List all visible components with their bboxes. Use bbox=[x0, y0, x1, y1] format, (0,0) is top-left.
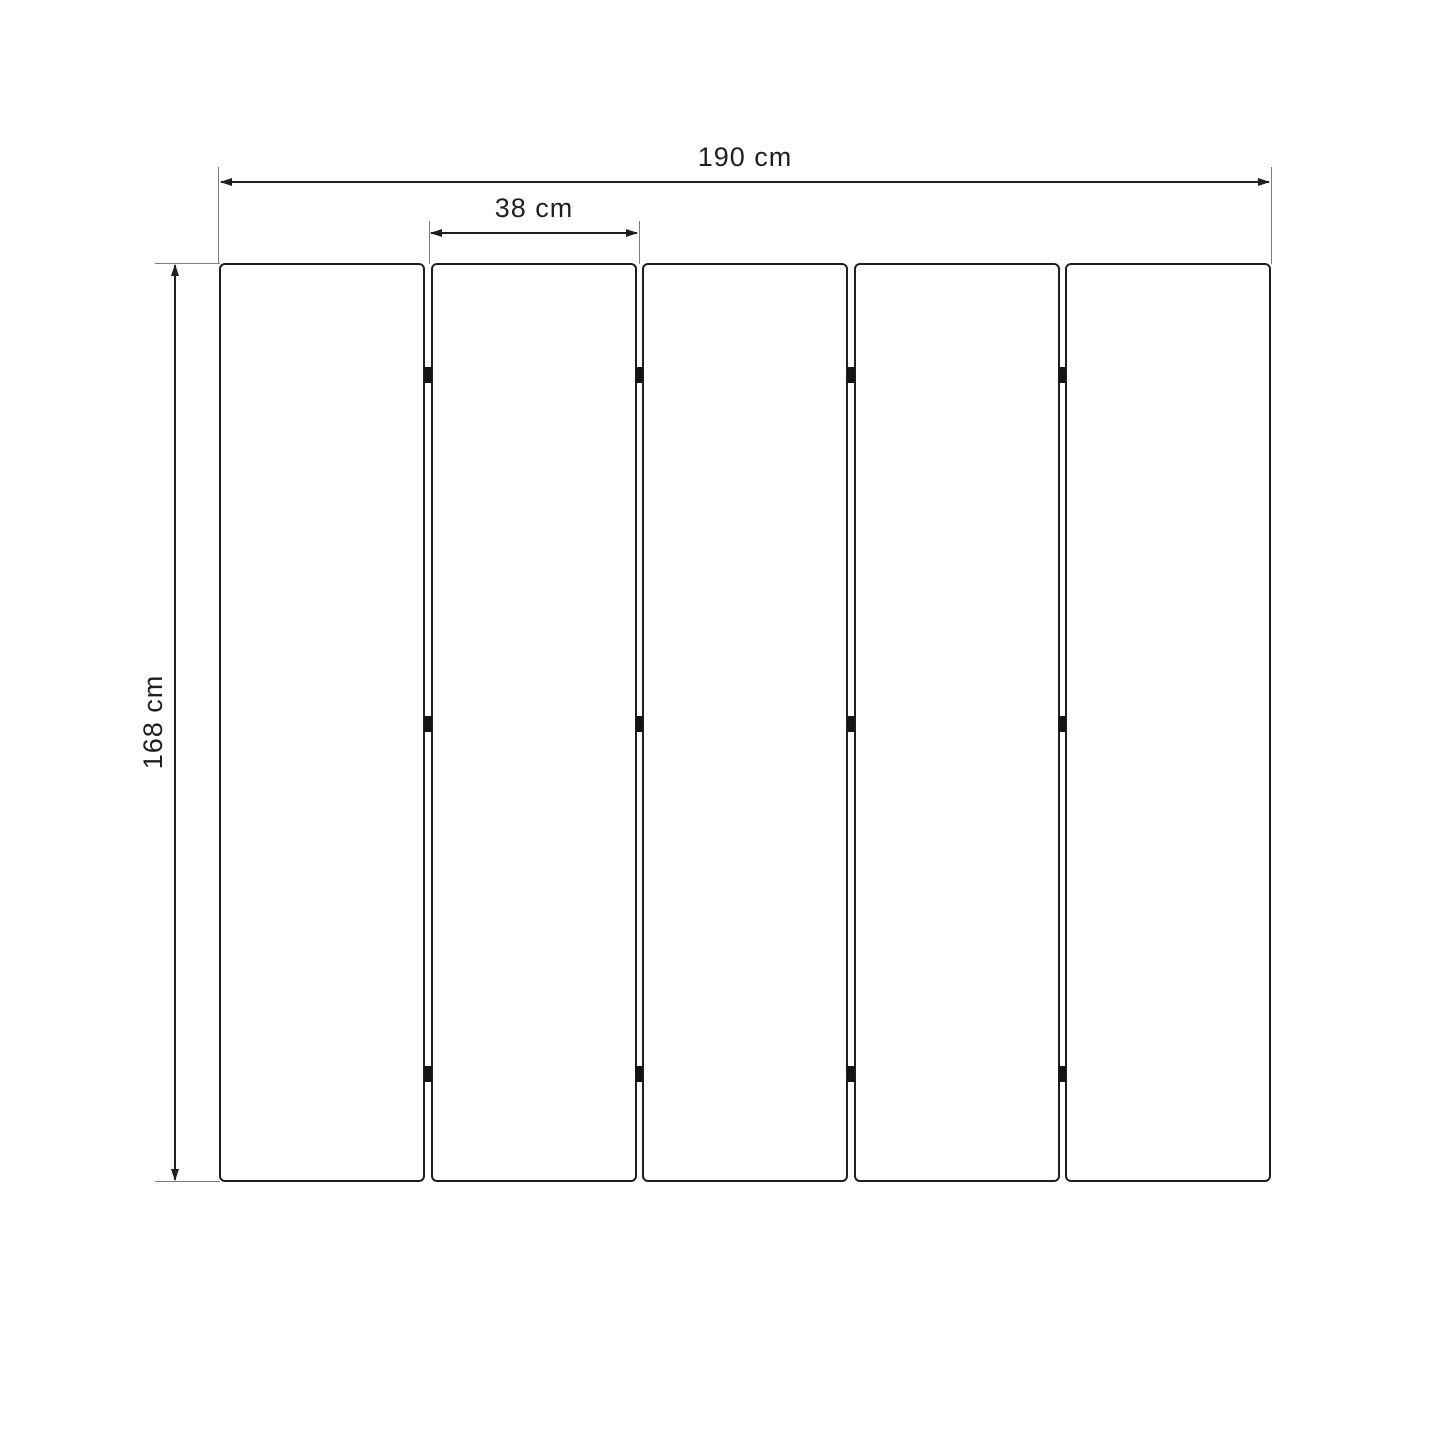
hinge bbox=[424, 367, 432, 383]
dimension-line-total-width bbox=[221, 181, 1269, 183]
dimension-line-height bbox=[174, 265, 176, 1180]
dimension-label-height: 168 cm bbox=[136, 572, 170, 872]
hinge-column-4 bbox=[1058, 263, 1066, 1182]
hinge bbox=[847, 1066, 855, 1082]
hinge-column-1 bbox=[424, 263, 432, 1182]
extension-line bbox=[155, 263, 220, 264]
arrowhead-right-icon bbox=[1258, 178, 1270, 186]
panel-3 bbox=[642, 263, 848, 1182]
extension-line bbox=[429, 221, 430, 264]
arrowhead-left-icon bbox=[430, 229, 442, 237]
extension-line bbox=[218, 167, 219, 264]
hinge bbox=[1058, 716, 1066, 732]
panel-2 bbox=[431, 263, 637, 1182]
hinge bbox=[635, 1066, 643, 1082]
arrowhead-right-icon bbox=[626, 229, 638, 237]
hinge bbox=[1058, 367, 1066, 383]
hinge bbox=[847, 716, 855, 732]
extension-line bbox=[639, 221, 640, 264]
hinge-column-3 bbox=[847, 263, 855, 1182]
hinge bbox=[635, 367, 643, 383]
hinge bbox=[635, 716, 643, 732]
arrowhead-left-icon bbox=[220, 178, 232, 186]
panel-5 bbox=[1065, 263, 1271, 1182]
extension-line bbox=[1271, 167, 1272, 264]
arrowhead-up-icon bbox=[171, 264, 179, 276]
panel-4 bbox=[854, 263, 1060, 1182]
hinge bbox=[847, 367, 855, 383]
diagram-canvas: 190 cm 38 cm 168 cm bbox=[0, 0, 1445, 1445]
panels-row bbox=[219, 263, 1271, 1182]
extension-line bbox=[155, 1181, 220, 1182]
hinge bbox=[424, 716, 432, 732]
panel-1 bbox=[219, 263, 425, 1182]
hinge-column-2 bbox=[635, 263, 643, 1182]
dimension-line-panel-width bbox=[431, 232, 637, 234]
hinge bbox=[424, 1066, 432, 1082]
dimension-label-panel-width: 38 cm bbox=[384, 191, 684, 225]
arrowhead-down-icon bbox=[171, 1169, 179, 1181]
hinge bbox=[1058, 1066, 1066, 1082]
dimension-label-total-width: 190 cm bbox=[595, 140, 895, 174]
